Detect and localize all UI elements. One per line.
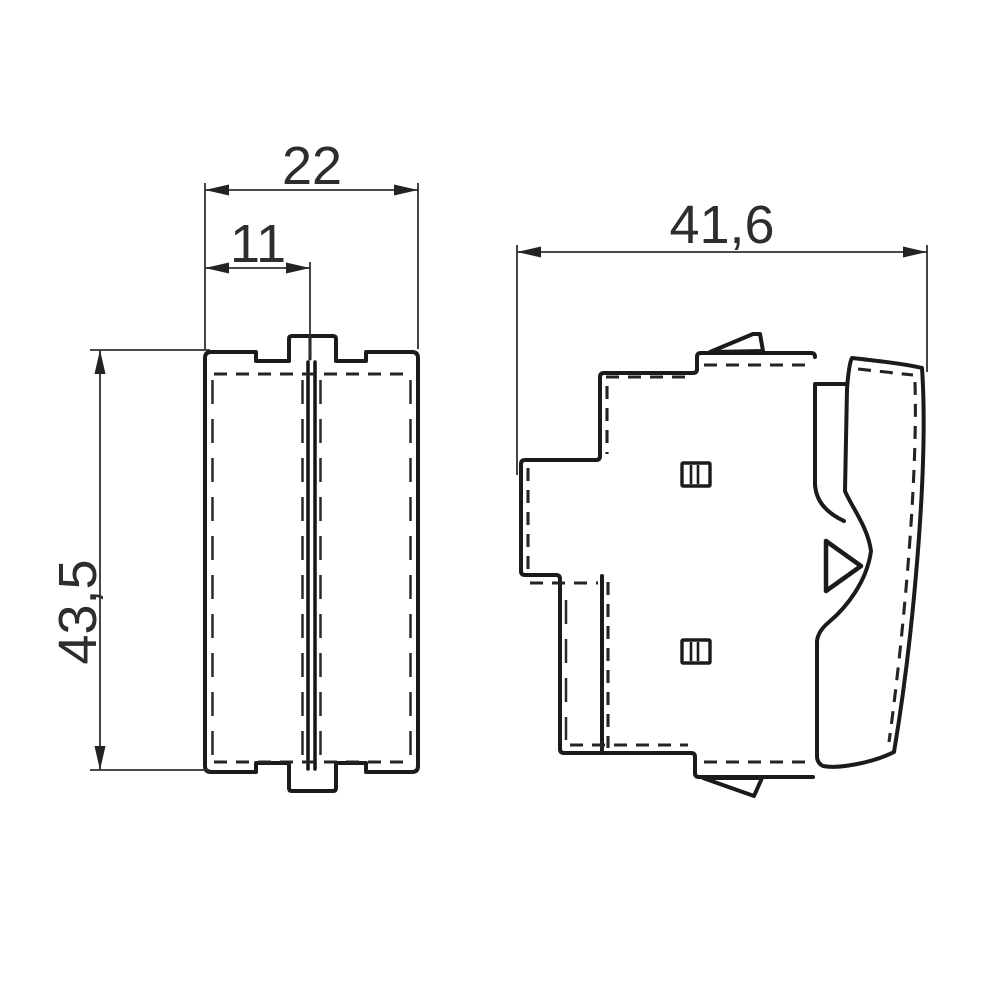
terminal-upper — [682, 463, 710, 486]
dim-front-center-arrow-left — [205, 263, 229, 274]
dim-front-width-arrow-right — [394, 185, 418, 196]
dim-side-depth-arrow-left — [517, 247, 541, 258]
rocker-indicator-triangle-icon — [826, 541, 861, 591]
side-top-claw — [710, 334, 763, 352]
dim-side-depth-label: 41,6 — [669, 195, 774, 255]
front-body-outline — [205, 336, 418, 791]
dim-front-center-label: 11 — [230, 214, 286, 274]
side-view — [521, 334, 924, 796]
side-body-outline — [521, 353, 815, 777]
front-view — [205, 336, 418, 791]
dim-side-depth-arrow-right — [903, 247, 927, 258]
side-bottom-claw — [703, 778, 762, 796]
side-body-right-edge — [815, 384, 845, 521]
dim-front-height-arrow-bottom — [95, 746, 106, 770]
dim-front-height-label: 43,5 — [48, 559, 108, 664]
dimensions: 22 11 43,5 41,6 — [48, 136, 927, 770]
dim-front-center-arrow-right — [286, 263, 310, 274]
drawing-svg: 22 11 43,5 41,6 — [0, 0, 1000, 1000]
dim-front-height: 43,5 — [48, 350, 210, 770]
terminal-lower — [682, 640, 710, 663]
dim-front-width-label: 22 — [282, 136, 342, 196]
dim-front-width-arrow-left — [205, 185, 229, 196]
technical-drawing: 22 11 43,5 41,6 — [0, 0, 1000, 1000]
dim-front-height-arrow-top — [95, 350, 106, 374]
